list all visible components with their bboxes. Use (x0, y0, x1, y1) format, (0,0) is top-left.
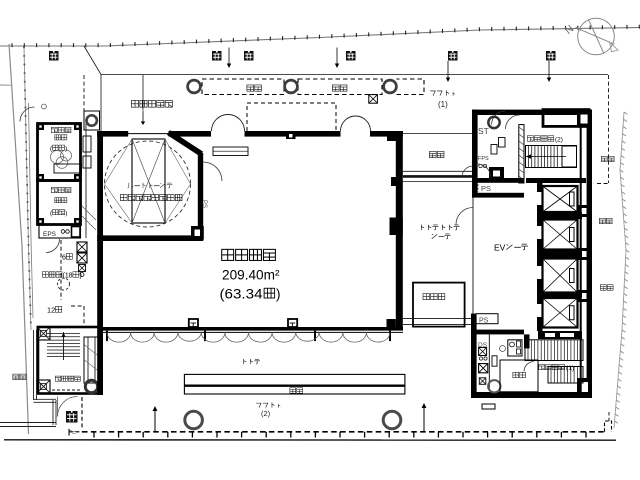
svg-text:EPS: EPS (43, 231, 57, 238)
svg-text:12: 12 (47, 306, 55, 315)
svg-text:FPS: FPS (478, 156, 489, 162)
svg-text:(63.34: (63.34 (220, 287, 264, 302)
svg-text:(2): (2) (555, 137, 563, 144)
svg-text:EV: EV (494, 243, 506, 253)
svg-text:(1): (1) (438, 100, 448, 109)
svg-text:F=: F= (68, 430, 76, 437)
svg-text:): ) (276, 287, 281, 302)
svg-text:(2): (2) (261, 409, 271, 418)
svg-text:ST: ST (478, 126, 489, 136)
svg-text:PS: PS (481, 184, 491, 193)
svg-text:): ) (79, 273, 81, 280)
svg-text:PS: PS (479, 318, 489, 325)
svg-text:(1): (1) (566, 365, 574, 372)
svg-text:6: 6 (62, 253, 66, 262)
svg-text:): ) (65, 210, 67, 217)
svg-text:): ) (65, 146, 67, 153)
svg-text:PS: PS (201, 200, 207, 208)
svg-text:209.40m²: 209.40m² (222, 268, 280, 283)
